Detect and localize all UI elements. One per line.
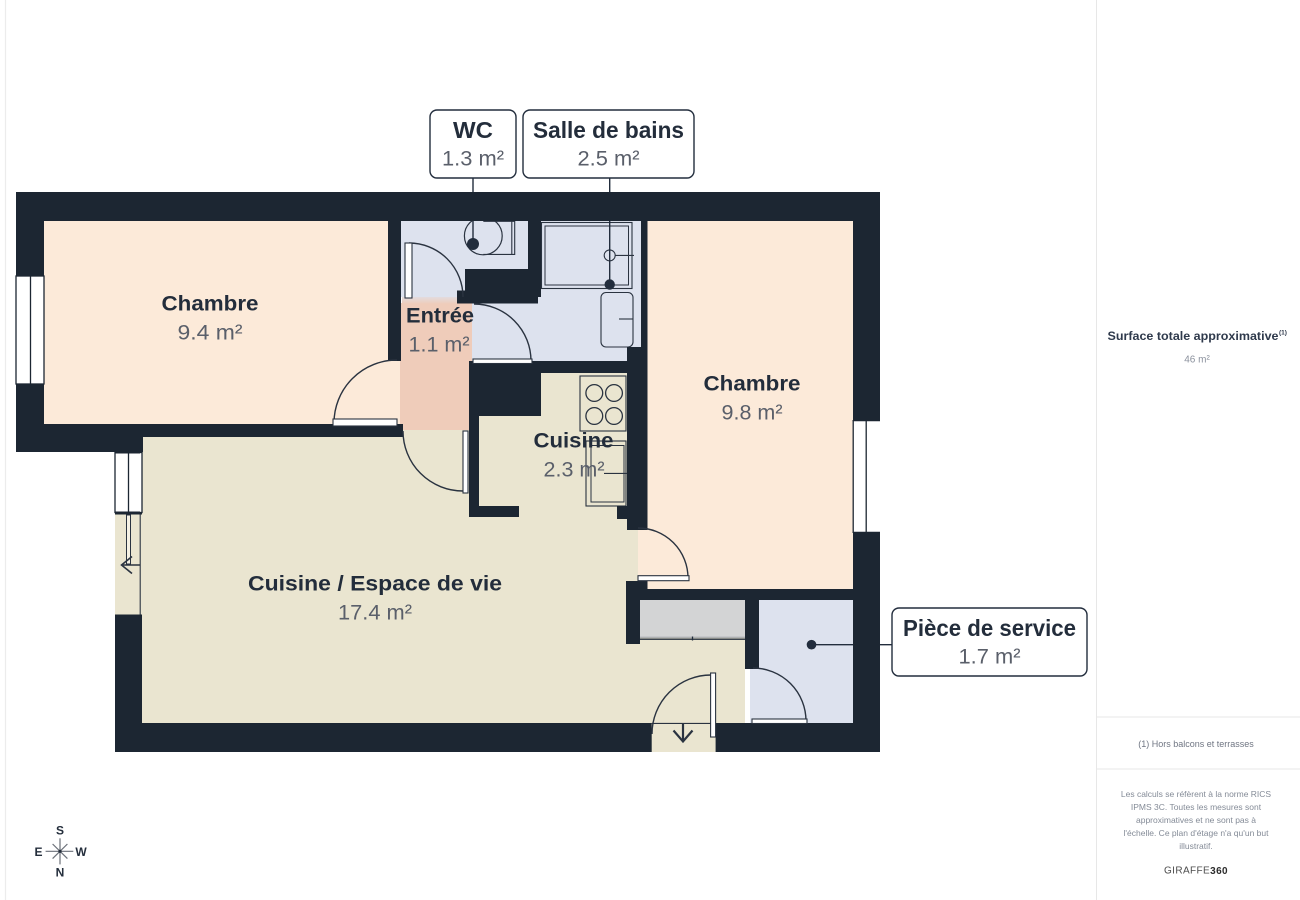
svg-text:9.8 m²: 9.8 m² <box>722 402 783 425</box>
svg-text:IPMS 3C. Toutes les mesures so: IPMS 3C. Toutes les mesures sont <box>1131 802 1262 812</box>
svg-text:2.5 m²: 2.5 m² <box>578 148 640 171</box>
svg-text:N: N <box>56 866 65 880</box>
svg-text:W: W <box>75 845 87 859</box>
svg-text:GIRAFFE360: GIRAFFE360 <box>1164 866 1228 877</box>
svg-text:9.4 m²: 9.4 m² <box>178 322 243 345</box>
svg-text:approximatives et ne sont pas: approximatives et ne sont pas à <box>1136 815 1256 825</box>
svg-text:Cuisine: Cuisine <box>534 430 614 453</box>
svg-text:l'échelle. Ce plan d'étage n'a: l'échelle. Ce plan d'étage n'a qu'un but <box>1124 828 1270 838</box>
svg-text:S: S <box>56 824 64 838</box>
svg-text:Chambre: Chambre <box>162 293 259 316</box>
svg-text:1.1 m²: 1.1 m² <box>409 334 470 357</box>
svg-text:WC: WC <box>453 117 493 143</box>
svg-text:illustratif.: illustratif. <box>1179 841 1213 851</box>
svg-text:Entrée: Entrée <box>406 305 474 328</box>
svg-text:Surface totale approximative: Surface totale approximative <box>1108 331 1279 343</box>
svg-text:1.7 m²: 1.7 m² <box>959 646 1021 669</box>
svg-text:Cuisine / Espace de vie: Cuisine / Espace de vie <box>248 573 502 596</box>
svg-text:Chambre: Chambre <box>704 373 801 396</box>
svg-text:Salle de bains: Salle de bains <box>533 117 684 143</box>
svg-text:(1): (1) <box>1279 330 1287 337</box>
svg-text:1.3 m²: 1.3 m² <box>442 148 504 171</box>
svg-text:46 m²: 46 m² <box>1184 355 1210 366</box>
svg-text:(1) Hors balcons et terrasses: (1) Hors balcons et terrasses <box>1138 739 1254 749</box>
svg-text:Les calculs se réfèrent à la n: Les calculs se réfèrent à la norme RICS <box>1121 789 1272 799</box>
svg-text:17.4 m²: 17.4 m² <box>338 602 412 625</box>
svg-text:E: E <box>34 845 42 859</box>
svg-text:Pièce de service: Pièce de service <box>903 615 1076 641</box>
svg-text:2.3 m²: 2.3 m² <box>544 459 605 482</box>
